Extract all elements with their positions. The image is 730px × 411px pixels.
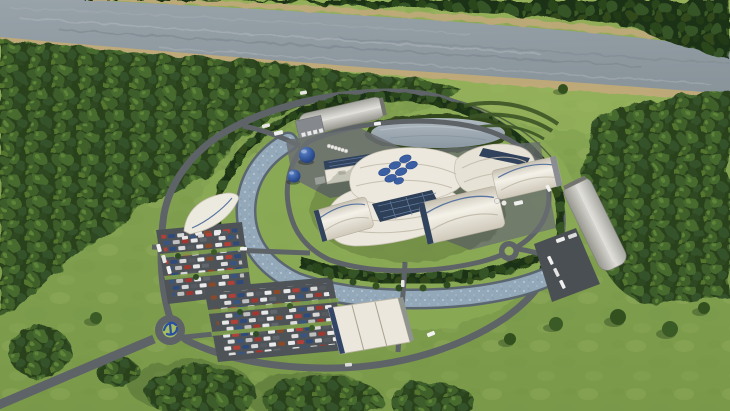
east-mini-roundabout bbox=[499, 241, 519, 261]
plant-rendering bbox=[0, 0, 730, 411]
tree-clump bbox=[8, 326, 72, 378]
entrance-roundabout bbox=[155, 315, 185, 345]
lower-parking-lot bbox=[204, 277, 346, 362]
rendering-canvas bbox=[0, 0, 730, 411]
